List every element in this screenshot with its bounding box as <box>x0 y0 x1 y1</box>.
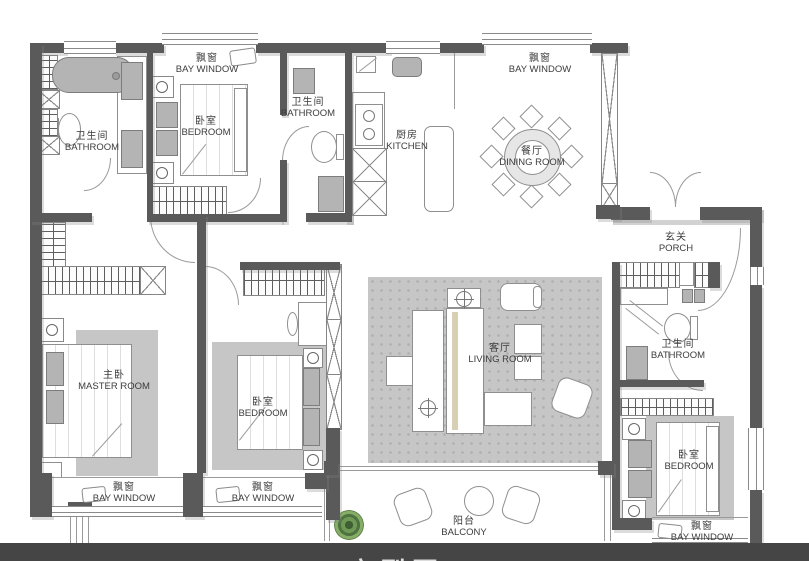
bench-cushion <box>156 102 178 128</box>
entrance-door-arc <box>675 172 701 207</box>
balcony-chair <box>391 485 435 529</box>
wall <box>612 518 652 530</box>
room-label-bedroom-2: 卧室 BEDROOM <box>238 397 287 419</box>
burner <box>363 110 375 122</box>
kitchen-counter-line <box>454 53 455 109</box>
wall <box>750 285 762 428</box>
door-arc <box>150 216 195 263</box>
footer-title: 户型图 <box>348 552 444 561</box>
room-label-balcony: 阳台 BALCONY <box>441 516 486 538</box>
balcony-chair <box>500 484 543 527</box>
sofa-chaise <box>484 392 532 426</box>
wall <box>280 160 287 222</box>
door-arc <box>228 178 261 213</box>
burner <box>363 128 375 140</box>
bay-window-glass <box>52 506 183 517</box>
wall <box>324 461 338 475</box>
kitchen-island <box>424 126 454 212</box>
label-zh: 卧室 <box>181 116 230 128</box>
room-label-living: 客厅 LIVING ROOM <box>468 343 531 365</box>
wall <box>750 207 762 267</box>
label-zh: 客厅 <box>468 343 531 355</box>
sink <box>318 176 344 212</box>
floor-plan: 卫生间 BATHROOM 飘窗 BAY WINDOW 卧室 BEDROOM 卫生… <box>0 0 809 561</box>
label-en: MASTER ROOM <box>78 381 150 392</box>
sliding-door-line <box>338 470 598 471</box>
closet-rack <box>151 186 227 215</box>
tv <box>386 356 413 386</box>
label-zh: 卧室 <box>238 397 287 409</box>
wall <box>618 380 704 387</box>
label-en: BATHROOM <box>65 142 119 153</box>
label-zh: 卫生间 <box>65 131 119 143</box>
nightstand-lamp <box>303 450 323 470</box>
kitchen-sink <box>392 57 422 77</box>
toilet-tank <box>690 316 698 340</box>
wall <box>590 43 628 53</box>
label-zh: 玄关 <box>659 232 693 244</box>
label-en: PORCH <box>659 243 693 254</box>
sink <box>121 62 143 100</box>
wall <box>240 262 340 270</box>
wall <box>305 473 327 489</box>
pantry-hatch <box>352 181 387 216</box>
toilet <box>311 131 337 163</box>
label-zh: 阳台 <box>441 516 486 528</box>
label-en: BAY WINDOW <box>509 64 571 75</box>
wall <box>30 213 92 222</box>
label-en: BAY WINDOW <box>93 493 155 504</box>
shelf-column <box>40 109 58 137</box>
wall <box>256 43 390 53</box>
bed-cushion <box>303 368 320 406</box>
label-en: BEDROOM <box>664 461 713 472</box>
balcony-table <box>464 486 494 516</box>
door-arc <box>84 158 111 191</box>
label-en: BAY WINDOW <box>176 64 238 75</box>
shaft-hatch <box>326 264 342 321</box>
wall <box>596 205 620 219</box>
corner-shelf-line <box>359 57 377 71</box>
label-zh: 飘窗 <box>509 53 571 65</box>
label-zh: 飘窗 <box>671 521 733 533</box>
wall <box>197 214 206 473</box>
ceiling-fan <box>40 318 64 342</box>
cabinet-box <box>682 289 693 303</box>
room-label-bay-window-bl1: 飘窗 BAY WINDOW <box>93 482 155 504</box>
shoe-cabinet-rack <box>618 262 680 288</box>
bench-cushion <box>156 130 178 156</box>
room-label-porch: 玄关 PORCH <box>659 232 693 254</box>
sliding-door-line <box>338 466 598 467</box>
label-en: DINING ROOM <box>499 157 564 168</box>
room-label-dining: 餐厅 DINING ROOM <box>499 146 564 168</box>
entrance-door-arc <box>650 172 676 207</box>
closet-hatch <box>140 266 166 295</box>
bed-pillows <box>234 88 247 172</box>
bench-cushion <box>628 440 652 468</box>
label-zh: 卫生间 <box>281 97 335 109</box>
window <box>748 428 764 490</box>
shaft-hatch <box>326 374 342 430</box>
nightstand-lamp <box>622 418 646 440</box>
closet-rack <box>40 222 66 268</box>
wall <box>114 43 164 53</box>
room-label-bathroom-r: 卫生间 BATHROOM <box>651 339 705 361</box>
closet-rack <box>620 398 714 416</box>
label-zh: 餐厅 <box>499 146 564 158</box>
label-en: BALCONY <box>441 527 486 538</box>
washer <box>293 68 315 94</box>
window <box>386 41 440 54</box>
toilet-tank <box>336 134 344 160</box>
wall <box>612 262 620 518</box>
porch-floor-shadow <box>613 220 750 225</box>
room-label-bathroom-tl: 卫生间 BATHROOM <box>65 131 119 153</box>
label-zh: 飘窗 <box>176 53 238 65</box>
room-label-bathroom-tm: 卫生间 BATHROOM <box>281 97 335 119</box>
window <box>750 267 764 285</box>
label-en: KITCHEN <box>386 141 428 152</box>
room-label-bedroom-tl: 卧室 BEDROOM <box>181 116 230 138</box>
room-label-master: 主卧 MASTER ROOM <box>78 370 150 392</box>
sink <box>121 130 143 168</box>
label-zh: 飘窗 <box>93 482 155 494</box>
wall <box>30 43 42 480</box>
nightstand-lamp <box>303 348 323 368</box>
room-label-bedroom-br: 卧室 BEDROOM <box>664 450 713 472</box>
decor-crosshair <box>456 291 472 307</box>
decor-crosshair <box>420 400 436 416</box>
label-en: BATHROOM <box>281 108 335 119</box>
wall <box>438 43 484 53</box>
door-arc <box>205 266 239 305</box>
shaft-hatch <box>326 319 342 376</box>
label-zh: 卫生间 <box>651 339 705 351</box>
shower-line <box>625 308 659 335</box>
label-zh: 主卧 <box>78 370 150 382</box>
dining-chair <box>519 184 543 208</box>
room-label-bay-window-tl: 飘窗 BAY WINDOW <box>176 53 238 75</box>
bay-window-glass <box>482 33 592 45</box>
dining-chair <box>519 104 543 128</box>
wall <box>750 490 762 543</box>
pantry-hatch <box>352 148 387 183</box>
nightstand-lamp <box>150 162 174 184</box>
window <box>64 41 116 54</box>
wall <box>598 461 614 475</box>
wall <box>147 214 282 222</box>
shoe-cabinet <box>678 262 694 286</box>
label-en: BEDROOM <box>238 408 287 419</box>
nightstand-lamp <box>150 76 174 98</box>
corner-shelf <box>356 56 376 73</box>
wall <box>708 262 720 288</box>
dresser-mirror <box>287 312 298 336</box>
bed-cushion <box>46 352 64 386</box>
label-en: BAY WINDOW <box>232 493 294 504</box>
bathtub-drain <box>112 72 120 80</box>
closet-rack <box>40 266 142 295</box>
bay-window-glass <box>203 506 322 517</box>
label-zh: 厨房 <box>386 130 428 142</box>
bay-window-glass <box>162 33 258 45</box>
balcony-rail <box>604 475 605 541</box>
label-zh: 卧室 <box>664 450 713 462</box>
footer-band: 户型图 <box>0 543 809 561</box>
cabinet <box>620 288 668 305</box>
bay-sill-line <box>52 477 183 478</box>
bed-cushion <box>303 408 320 446</box>
room-label-bay-window-bl2: 飘窗 BAY WINDOW <box>232 482 294 504</box>
sink <box>626 346 648 380</box>
wall <box>345 53 352 222</box>
balcony-rail <box>610 475 611 541</box>
room-label-bay-window-tr: 飘窗 BAY WINDOW <box>509 53 571 75</box>
room-label-bay-window-br: 飘窗 BAY WINDOW <box>671 521 733 543</box>
door-arc <box>282 126 309 161</box>
wall <box>30 473 52 517</box>
label-en: BATHROOM <box>651 350 705 361</box>
label-en: BAY WINDOW <box>671 532 733 543</box>
shaft-hatch <box>601 53 618 185</box>
bay-sill-line <box>652 517 748 518</box>
sofa-back-cushion <box>452 312 458 430</box>
armchair-cushion <box>533 286 542 308</box>
wall <box>183 473 203 517</box>
label-en: BEDROOM <box>181 127 230 138</box>
bed-cushion <box>46 390 64 424</box>
room-label-kitchen: 厨房 KITCHEN <box>386 130 428 152</box>
label-en: LIVING ROOM <box>468 354 531 365</box>
bench-cushion <box>628 470 652 498</box>
wall <box>147 53 153 214</box>
label-zh: 飘窗 <box>232 482 294 494</box>
